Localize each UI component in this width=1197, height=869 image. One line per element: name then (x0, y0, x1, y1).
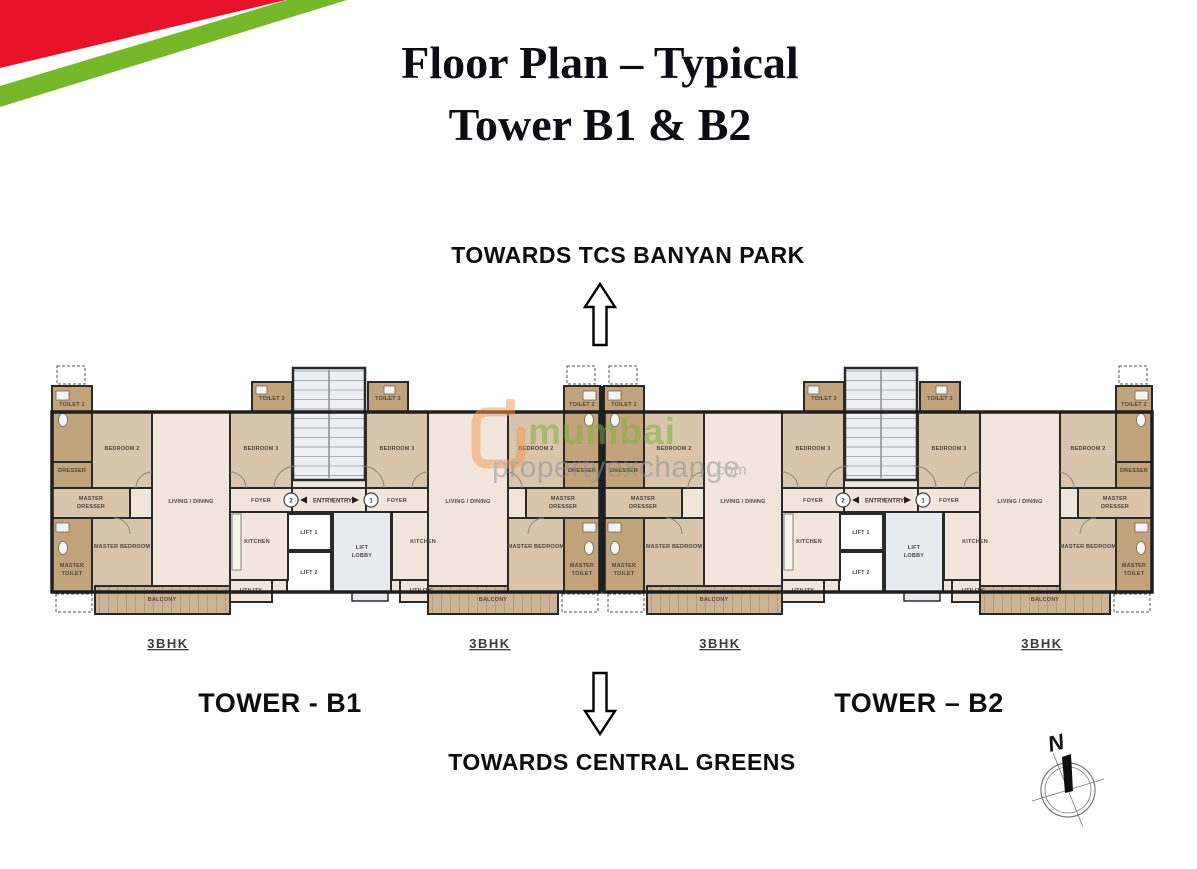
floor-plan-canvas: Floor Plan – Typical Tower B1 & B2 TOWAR… (0, 0, 1197, 869)
compass-north-label: N (1045, 728, 1068, 756)
watermark-logo-tab (506, 399, 515, 416)
ledge (567, 366, 595, 384)
kitchen-label: KITCHEN (244, 539, 270, 545)
tower-b1-label: TOWER - B1 (198, 688, 362, 718)
sink-fixture (384, 386, 395, 394)
master-bedroom-room (92, 518, 152, 592)
lift-2-label: LIFT 2 (300, 570, 317, 576)
page-title-line1: Floor Plan – Typical (401, 37, 798, 88)
toilet-3-label: TOILET 3 (375, 396, 401, 402)
entry-right-label: ENTRY (332, 499, 352, 505)
floor-plan-drawing: LIFT 1 LIFT 2 LIFTLOBBY (52, 366, 1152, 651)
bedroom-3-label: BEDROOM 3 (379, 446, 414, 452)
toilet-2-label: TOILET 2 (59, 402, 85, 408)
unit-a-3bhk: TOILET 2 DRESSER BEDROOM 2 MASTERDRESSER… (52, 382, 296, 614)
wc-fixture (59, 542, 68, 555)
foyer-label: FOYER (251, 498, 271, 504)
tower-b2-plan (604, 366, 1152, 651)
sink-fixture (56, 523, 69, 532)
compass: N (1032, 728, 1104, 827)
ledge (562, 594, 598, 612)
towards-top-label: TOWARDS TCS BANYAN PARK (451, 242, 805, 268)
living-dining-label: LIVING / DINING (445, 499, 490, 505)
master-bedroom-room (508, 518, 564, 592)
sink-fixture (256, 386, 267, 394)
corner-ribbon (0, 0, 347, 107)
compass-needle-icon (1062, 754, 1073, 793)
watermark-domain-suffix: .com (712, 462, 747, 479)
unit-type-label: 3BHK (147, 636, 188, 651)
foyer-label: FOYER (387, 498, 407, 504)
dresser-label: DRESSER (58, 468, 86, 474)
kitchen-label: KITCHEN (410, 539, 436, 545)
bedroom-3-label: BEDROOM 3 (243, 446, 278, 452)
toilet-3-label: TOILET 3 (259, 396, 285, 402)
north-arrow-icon (585, 284, 615, 345)
entry-left-label: ENTRY (313, 499, 333, 505)
lift-1-label: LIFT 1 (300, 530, 317, 536)
towards-bottom-label: TOWARDS CENTRAL GREENS (448, 749, 796, 775)
toilet-2-label: TOILET 2 (569, 402, 595, 408)
lift-lobby-room (333, 512, 391, 592)
ledge (57, 366, 85, 384)
floor-plan-page: Floor Plan – Typical Tower B1 & B2 TOWAR… (0, 0, 1197, 869)
bedroom-2-label: BEDROOM 2 (104, 446, 139, 452)
tower-b1-plan: LIFT 1 LIFT 2 LIFTLOBBY (52, 366, 600, 651)
balcony-label: BALCONY (148, 597, 177, 603)
dresser-room (52, 462, 92, 488)
watermark-brand-primary: mumbai (528, 411, 676, 452)
master-dresser-room (52, 488, 130, 518)
master-dresser-room (526, 488, 600, 518)
sink-fixture (583, 523, 596, 532)
sink-fixture (583, 391, 596, 400)
tower-b2-label: TOWER – B2 (834, 688, 1004, 718)
master-bedroom-label: MASTER BEDROOM (508, 544, 564, 550)
kitchen-counter (232, 514, 241, 570)
living-dining-label: LIVING / DINING (168, 499, 213, 505)
page-title-line2: Tower B1 & B2 (449, 99, 752, 150)
unit-type-label: 3BHK (469, 636, 510, 651)
watermark-brand-secondary: propertyexchange (492, 451, 740, 484)
wc-fixture (59, 414, 68, 427)
balcony-label: BALCONY (479, 597, 508, 603)
sink-fixture (56, 391, 69, 400)
south-arrow-icon (585, 673, 615, 734)
master-bedroom-label: MASTER BEDROOM (94, 544, 150, 550)
wc-fixture (585, 542, 594, 555)
ledge (56, 594, 92, 612)
